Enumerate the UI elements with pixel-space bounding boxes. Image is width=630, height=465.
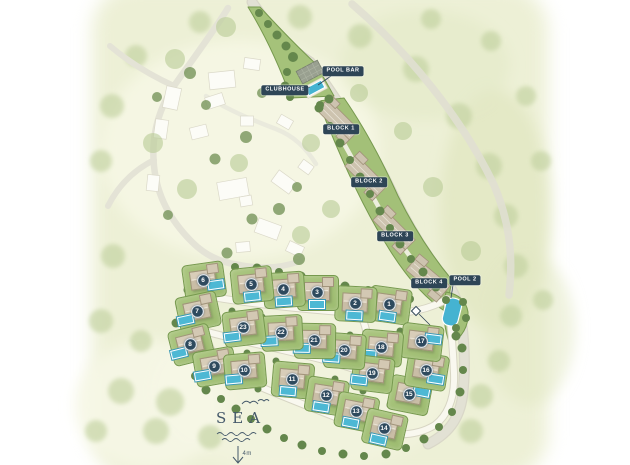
map-labels-layer: POOL BARCLUBHOUSEBLOCK 1BLOCK 2BLOCK 3BL… [0,0,630,465]
sea-indicator: SEA 4m [200,398,276,465]
map-label-pool-2: POOL 2 [449,275,480,285]
site-plan-page: 1234567891011121314151617181920212223 PO… [0,0,630,465]
map-label-block-3: BLOCK 3 [377,231,413,241]
map-label-pool-bar: POOL BAR [323,66,364,76]
map-label-block-2: BLOCK 2 [351,177,387,187]
sea-label: SEA [200,409,276,427]
map-label-block-4: BLOCK 4 [411,278,447,288]
waves-icon [215,431,261,444]
sea-distance: 4m [243,451,252,457]
birds-icon [240,396,270,409]
map-label-clubhouse: CLUBHOUSE [261,85,308,95]
map-label-block-1: BLOCK 1 [323,124,359,134]
